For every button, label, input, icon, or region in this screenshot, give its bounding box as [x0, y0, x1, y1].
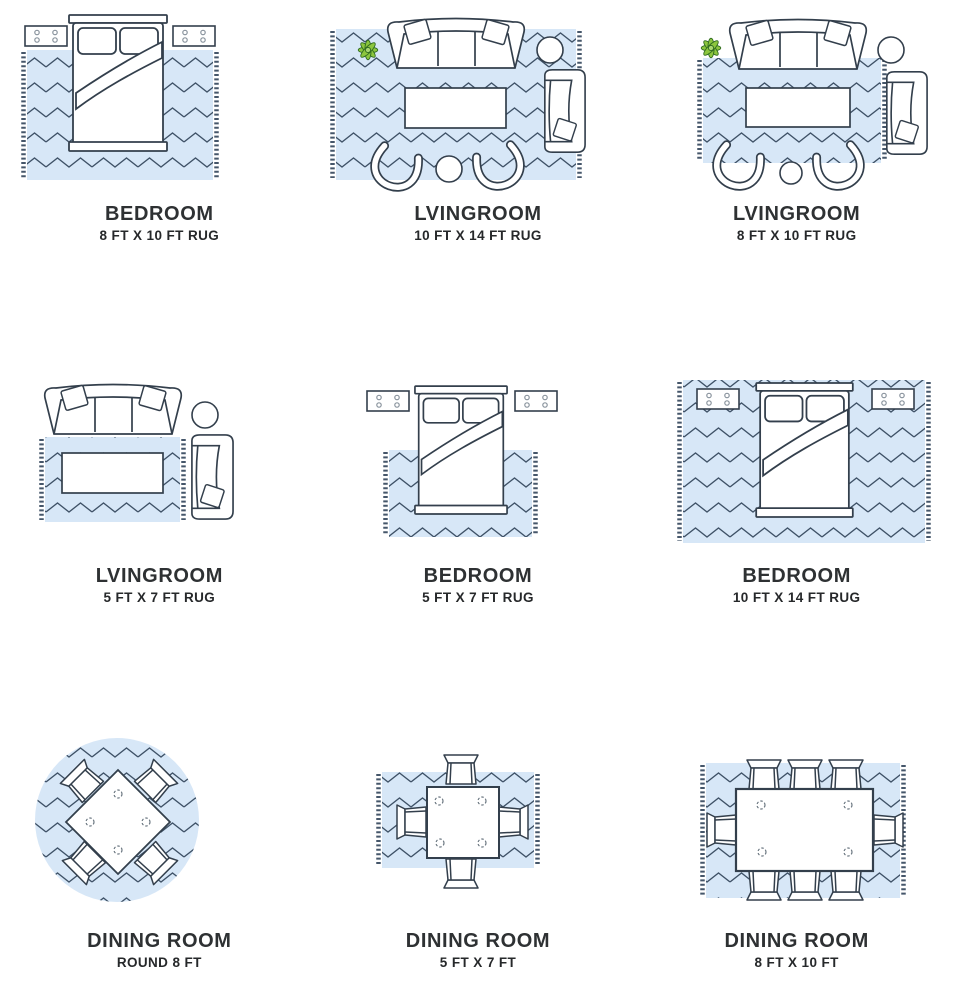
rug-size-label: 5 FT X 7 FT RUG: [96, 590, 223, 605]
bedroom-8x10-illustration: [0, 0, 318, 200]
nightstand-right: [515, 391, 557, 411]
room-title: DINING ROOM: [724, 930, 868, 952]
dining-table: [736, 789, 873, 871]
side-table: [878, 37, 904, 63]
coffee-table: [405, 88, 506, 128]
side-table: [192, 402, 218, 428]
nightstand-left: [367, 391, 409, 411]
room-title: BEDROOM: [99, 203, 219, 225]
room-title: BEDROOM: [733, 565, 861, 587]
livingroom-5x7-illustration: [0, 370, 318, 562]
cell-bedroom-5x7: BEDROOM 5 FT X 7 FT RUG: [319, 330, 638, 675]
rug-size-label: 10 FT X 14 FT RUG: [414, 228, 542, 243]
bedroom-10x14-illustration: [638, 370, 956, 562]
rug-size-label: 5 FT X 7 FT RUG: [422, 590, 534, 605]
dining-chair-left: [397, 805, 426, 839]
armchair: [545, 70, 585, 152]
bedroom-5x7-illustration: [319, 370, 637, 562]
rug-size-guide: BEDROOM 8 FT X 10 FT RUG LVINGROOM 10 FT…: [0, 0, 956, 990]
cell-diningroom-8x10: DINING ROOM 8 FT X 10 FT: [637, 675, 956, 990]
diningroom-5x7-illustration: [319, 715, 637, 927]
cell-livingroom-8x10: LVINGROOM 8 FT X 10 FT RUG: [637, 0, 956, 330]
cell-diningroom-round-8ft: DINING ROOM ROUND 8 FT: [0, 675, 319, 990]
diningroom-round-8ft-illustration: [0, 715, 318, 927]
cell-livingroom-10x14: LVINGROOM 10 FT X 14 FT RUG: [319, 0, 638, 330]
dining-chair-bottom-3: [829, 871, 863, 900]
sofa: [729, 20, 866, 70]
dining-chair-bottom-1: [747, 871, 781, 900]
dining-chair-bottom: [444, 859, 478, 888]
livingroom-8x10-illustration: [638, 0, 956, 200]
dining-chair-top-1: [747, 760, 781, 789]
cell-bedroom-8x10: BEDROOM 8 FT X 10 FT RUG: [0, 0, 319, 330]
nightstand-right: [173, 26, 215, 46]
room-title: LVINGROOM: [733, 203, 860, 225]
nightstand-right: [872, 389, 914, 409]
plant: [358, 40, 378, 60]
armchair: [192, 435, 233, 519]
ottoman: [436, 156, 462, 182]
room-title: DINING ROOM: [87, 930, 231, 952]
armchair: [886, 72, 926, 154]
dining-chair-right: [499, 805, 528, 839]
rug-size-label: 8 FT X 10 FT RUG: [99, 228, 219, 243]
plant: [701, 38, 721, 58]
ottoman: [780, 162, 802, 184]
bed: [756, 383, 853, 517]
rug-size-label: 8 FT X 10 FT: [724, 955, 868, 970]
bed: [69, 15, 167, 151]
rug-size-label: 5 FT X 7 FT: [406, 955, 550, 970]
rug-size-label: 8 FT X 10 FT RUG: [733, 228, 860, 243]
dining-chair-bottom-2: [788, 871, 822, 900]
dining-chair-top-2: [788, 760, 822, 789]
cell-diningroom-5x7: DINING ROOM 5 FT X 7 FT: [319, 675, 638, 990]
room-title: LVINGROOM: [414, 203, 542, 225]
sofa: [45, 385, 182, 435]
cell-livingroom-5x7: LVINGROOM 5 FT X 7 FT RUG: [0, 330, 319, 675]
room-title: DINING ROOM: [406, 930, 550, 952]
dining-chair-top-3: [829, 760, 863, 789]
rug-size-label: 10 FT X 14 FT RUG: [733, 590, 861, 605]
dining-chair-top: [444, 755, 478, 784]
nightstand-left: [25, 26, 67, 46]
diningroom-8x10-illustration: [638, 715, 956, 927]
cell-bedroom-10x14: BEDROOM 10 FT X 14 FT RUG: [637, 330, 956, 675]
coffee-table: [62, 453, 163, 493]
coffee-table: [746, 88, 850, 127]
bed: [415, 386, 507, 514]
dining-chair-left: [707, 813, 736, 847]
room-title: LVINGROOM: [96, 565, 223, 587]
rug-size-label: ROUND 8 FT: [87, 955, 231, 970]
dining-chair-right: [874, 813, 903, 847]
side-table: [537, 37, 563, 63]
nightstand-left: [697, 389, 739, 409]
sofa: [388, 19, 525, 69]
room-title: BEDROOM: [422, 565, 534, 587]
livingroom-10x14-illustration: [319, 0, 637, 200]
